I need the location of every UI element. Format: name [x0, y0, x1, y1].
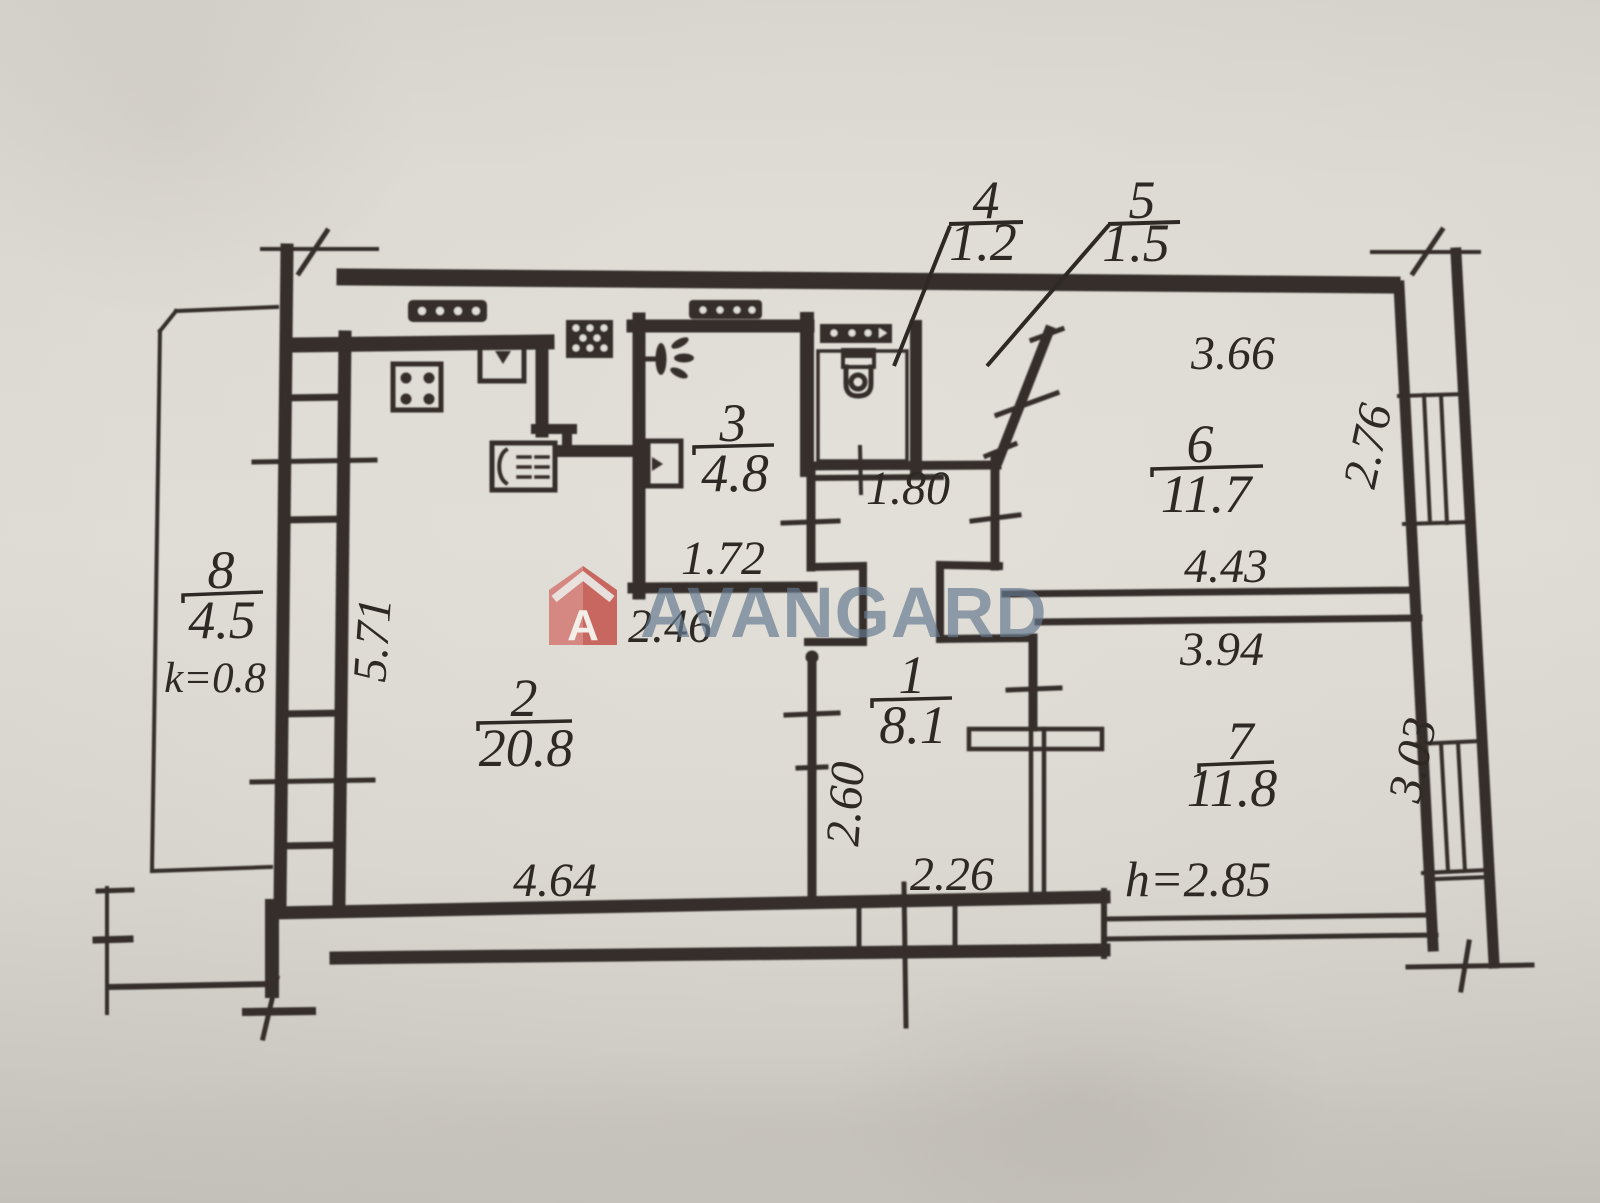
- svg-text:1.5: 1.5: [1102, 213, 1170, 273]
- svg-text:1.80: 1.80: [866, 462, 950, 515]
- svg-text:h=2.85: h=2.85: [1125, 851, 1271, 907]
- svg-text:2.26: 2.26: [910, 848, 994, 901]
- svg-text:A: A: [567, 601, 599, 650]
- svg-text:2.60: 2.60: [816, 760, 875, 847]
- svg-text:k=0.8: k=0.8: [164, 655, 266, 702]
- svg-text:AVANGARD: AVANGARD: [640, 574, 1048, 653]
- svg-text:5.71: 5.71: [343, 596, 402, 683]
- svg-text:20.8: 20.8: [479, 718, 574, 778]
- svg-text:8.1: 8.1: [879, 695, 947, 755]
- svg-text:4.5: 4.5: [188, 590, 256, 650]
- svg-text:4.64: 4.64: [513, 854, 597, 907]
- svg-text:4.8: 4.8: [701, 443, 769, 503]
- svg-text:3.94: 3.94: [1179, 623, 1264, 676]
- svg-text:4.43: 4.43: [1184, 540, 1268, 593]
- svg-text:1.2: 1.2: [949, 212, 1017, 272]
- svg-text:11.7: 11.7: [1161, 464, 1253, 524]
- svg-text:11.8: 11.8: [1187, 758, 1278, 818]
- svg-text:3.66: 3.66: [1190, 327, 1275, 380]
